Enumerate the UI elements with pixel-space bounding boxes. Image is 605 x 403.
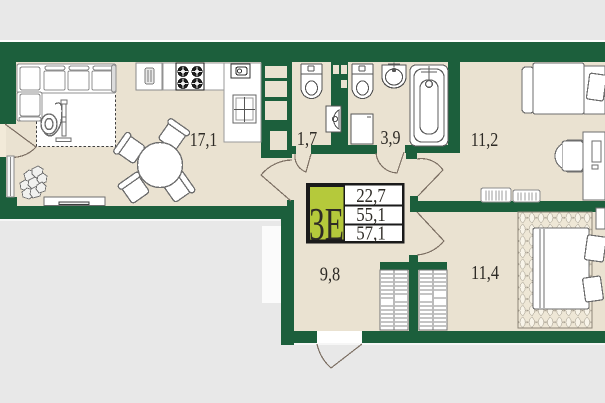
- svg-text:3,9: 3,9: [381, 127, 401, 149]
- svg-text:11,4: 11,4: [471, 262, 499, 284]
- svg-text:3Е: 3Е: [309, 199, 344, 251]
- svg-text:11,2: 11,2: [471, 129, 499, 151]
- svg-text:1,7: 1,7: [297, 128, 318, 150]
- svg-text:57,1: 57,1: [356, 223, 386, 245]
- svg-text:17,1: 17,1: [190, 129, 218, 151]
- svg-text:9,8: 9,8: [320, 264, 341, 286]
